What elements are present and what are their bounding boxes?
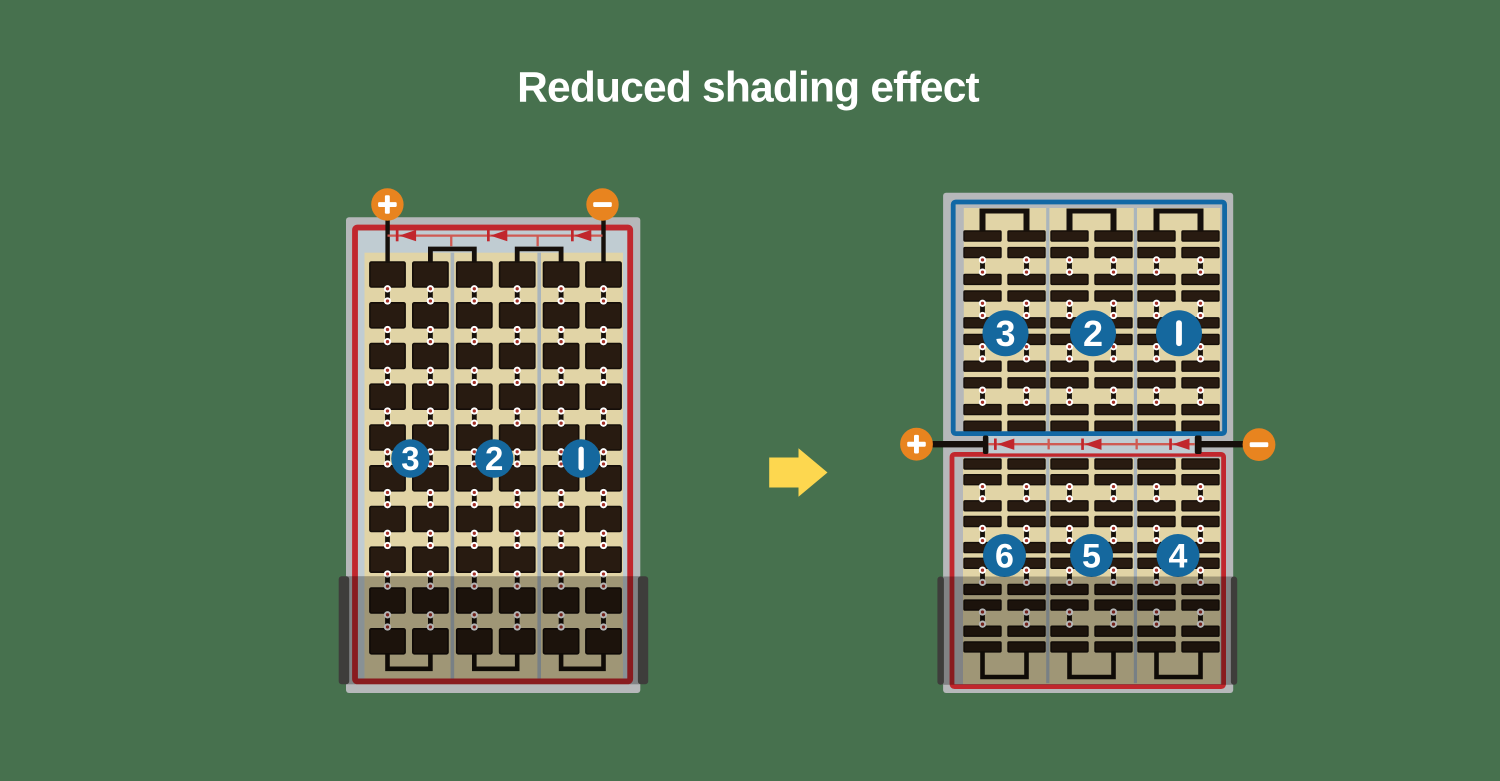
- svg-text:3: 3: [995, 313, 1015, 354]
- svg-text:5: 5: [1082, 538, 1101, 576]
- svg-text:2: 2: [1083, 313, 1103, 354]
- svg-text:4: 4: [1169, 538, 1188, 576]
- svg-text:3: 3: [401, 440, 419, 477]
- svg-text:Reduced shading effect: Reduced shading effect: [517, 65, 979, 112]
- svg-text:6: 6: [995, 538, 1014, 576]
- svg-text:2: 2: [485, 440, 503, 477]
